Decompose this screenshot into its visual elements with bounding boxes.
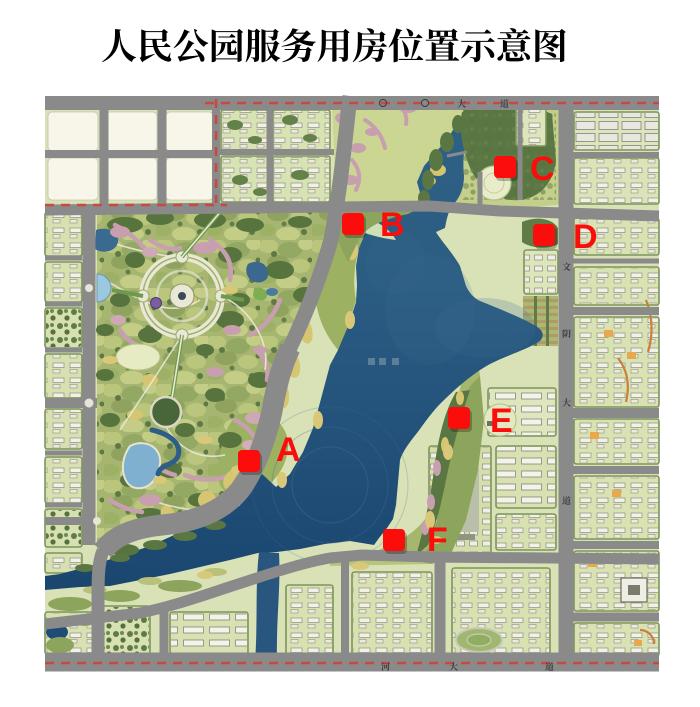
svg-text:B: B xyxy=(380,206,405,244)
svg-text:A: A xyxy=(276,431,301,469)
svg-text:D: D xyxy=(573,218,598,256)
svg-text:F: F xyxy=(427,521,448,559)
svg-text:C: C xyxy=(530,150,555,188)
svg-text:E: E xyxy=(490,402,513,440)
